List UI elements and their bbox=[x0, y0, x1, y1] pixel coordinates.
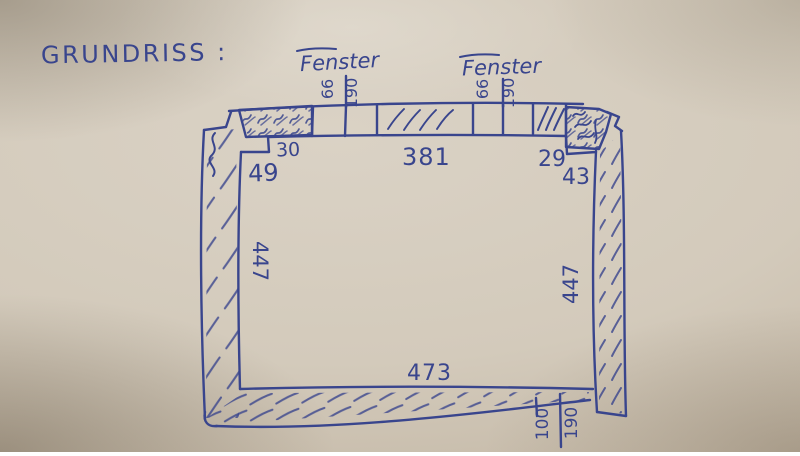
dim-bottom-span: 473 bbox=[407, 361, 452, 386]
dim-top-right-pier: 43 bbox=[562, 165, 590, 190]
dim-opening-a: 100 bbox=[533, 408, 553, 440]
top-right-corner-block-hatch bbox=[566, 107, 611, 149]
top-left-wall-block-hatch bbox=[240, 107, 311, 136]
dim-top-span: 381 bbox=[402, 143, 451, 171]
window-label-right: Fenster bbox=[462, 54, 543, 81]
top-left-notch bbox=[241, 137, 269, 152]
dim-top-left-pier: 49 bbox=[248, 159, 280, 188]
left-wall-top-step bbox=[204, 112, 231, 130]
window-left-width-dim: 190 bbox=[342, 78, 361, 109]
page-title: GRUNDRISS : bbox=[41, 38, 228, 69]
window-right-height-dim: 66 bbox=[473, 79, 492, 99]
bottom-wall-inner-line bbox=[240, 387, 593, 389]
dim-left-wall-height: 447 bbox=[248, 241, 272, 281]
dim-opening-b: 190 bbox=[562, 407, 582, 439]
floorplan-sketch: GRUNDRISS : Fenster Fenster 66 190 66 19… bbox=[0, 0, 800, 452]
paper-photo-background: GRUNDRISS : Fenster Fenster 66 190 66 19… bbox=[0, 0, 800, 452]
left-wall-inner-line bbox=[238, 152, 241, 389]
dim-right-wall-height: 447 bbox=[559, 264, 583, 304]
opening-tick-long bbox=[560, 394, 561, 447]
right-wall-inner-line bbox=[593, 151, 597, 412]
window-right-width-dim: 190 bbox=[499, 78, 518, 109]
left-wall-outer-line bbox=[201, 130, 205, 419]
labels: GRUNDRISS : Fenster Fenster 66 190 66 19… bbox=[41, 38, 590, 440]
mid-wall-strokes bbox=[388, 109, 453, 130]
top-right-wall-strokes bbox=[538, 107, 564, 130]
window-left-height-dim: 66 bbox=[318, 79, 337, 99]
window-label-left: Fenster bbox=[299, 48, 381, 76]
left-wall-hatch bbox=[206, 129, 239, 418]
right-wall-hatch bbox=[599, 134, 624, 414]
window-left-mullion bbox=[345, 106, 346, 136]
dim-top-left-segment: 30 bbox=[276, 139, 301, 162]
